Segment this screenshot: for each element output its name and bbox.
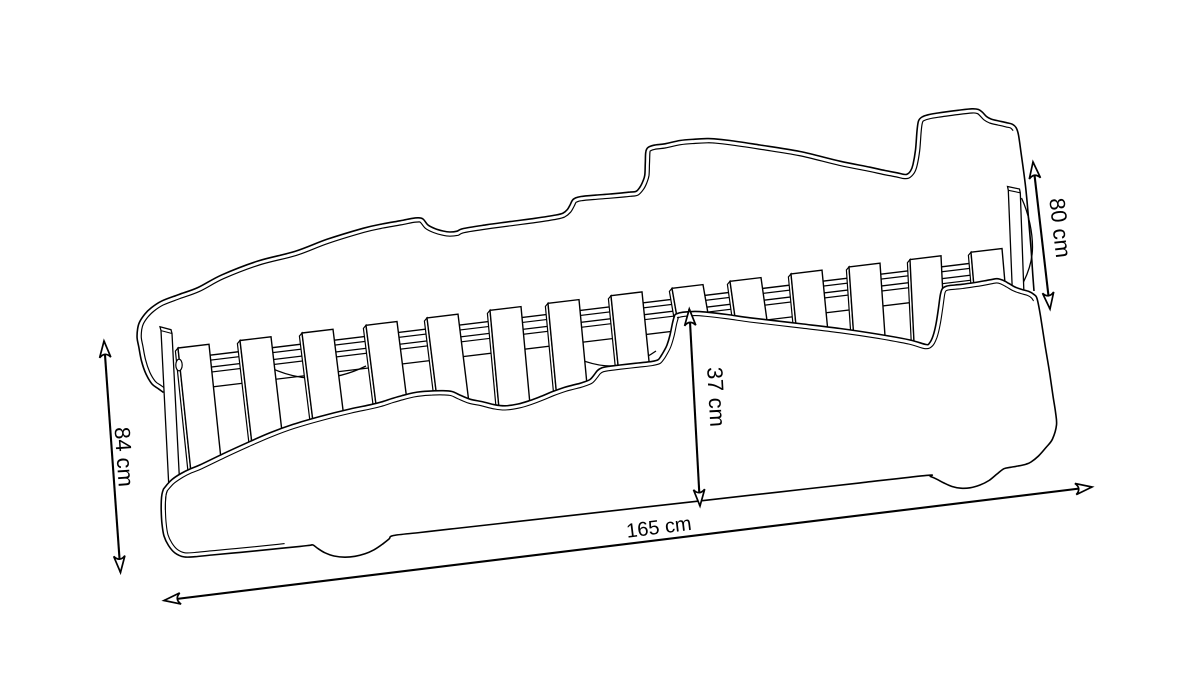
svg-text:165 cm: 165 cm: [625, 513, 693, 543]
svg-text:84 cm: 84 cm: [110, 426, 139, 488]
svg-text:37 cm: 37 cm: [702, 366, 730, 427]
svg-text:80 cm: 80 cm: [1044, 197, 1076, 259]
